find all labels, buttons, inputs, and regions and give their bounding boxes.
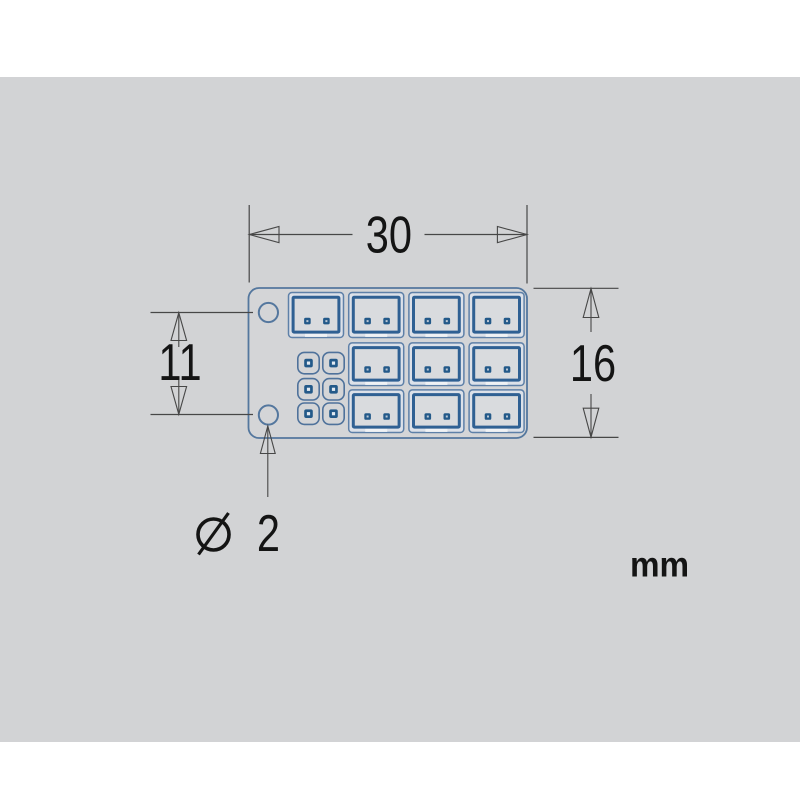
svg-text:30: 30 (366, 205, 412, 264)
svg-text:2: 2 (257, 504, 280, 563)
svg-text:16: 16 (570, 334, 616, 393)
svg-text:11: 11 (158, 333, 201, 392)
svg-text:mm: mm (630, 546, 689, 585)
